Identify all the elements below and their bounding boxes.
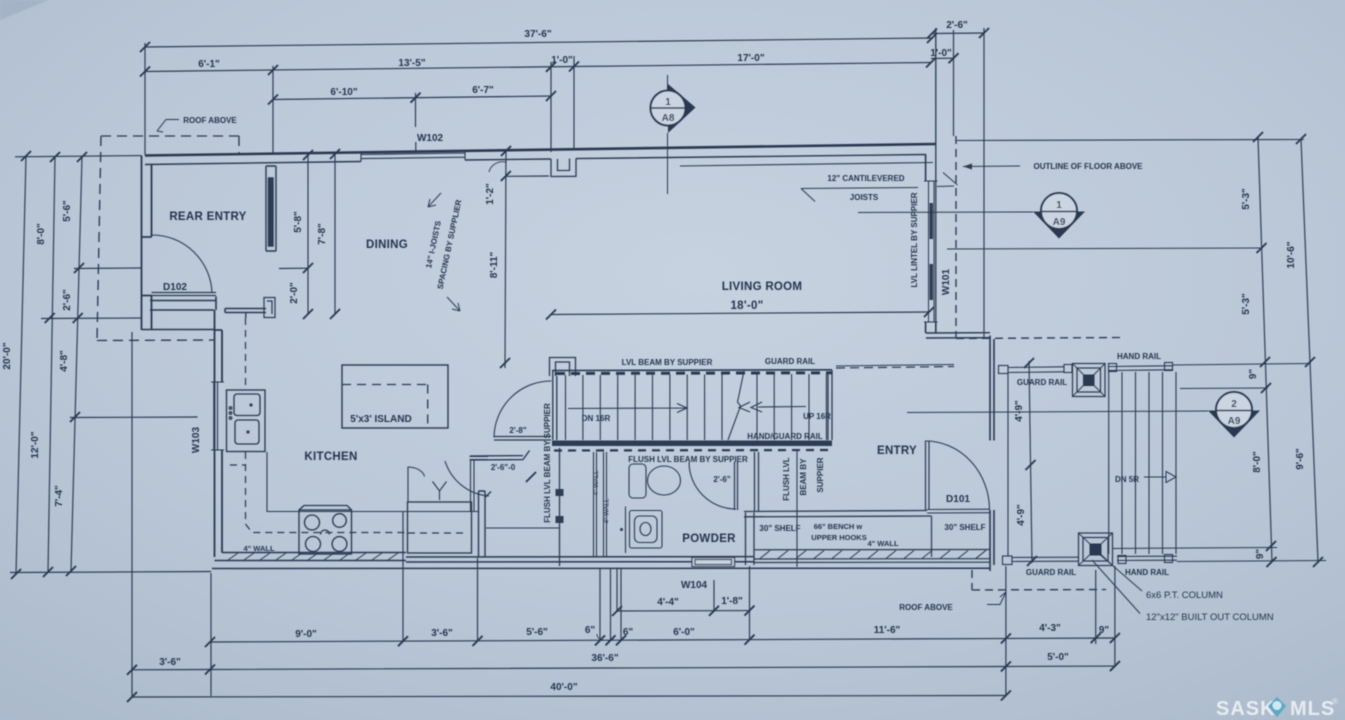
svg-text:DN 5R: DN 5R (1115, 475, 1139, 484)
svg-text:1'-0": 1'-0" (551, 55, 573, 66)
svg-text:MLS: MLS (1290, 698, 1335, 720)
svg-text:FLUSH LVL BEAM BY SUPPIER: FLUSH LVL BEAM BY SUPPIER (543, 403, 552, 523)
svg-text:SASK: SASK (1216, 698, 1276, 720)
svg-text:4'-8": 4'-8" (59, 350, 70, 372)
svg-text:FLUSH LVL: FLUSH LVL (782, 457, 791, 501)
svg-text:1'-2": 1'-2" (485, 183, 496, 205)
svg-text:9": 9" (1248, 369, 1259, 380)
svg-text:5'-0": 5'-0" (1047, 652, 1069, 663)
svg-text:20'-0": 20'-0" (2, 342, 13, 369)
svg-text:A9: A9 (1228, 416, 1241, 427)
svg-text:30" SHELF: 30" SHELF (944, 523, 985, 532)
svg-text:7'-4": 7'-4" (54, 485, 65, 507)
svg-text:W101: W101 (941, 269, 952, 296)
svg-text:A9: A9 (1053, 217, 1066, 228)
svg-text:8'-0": 8'-0" (1252, 451, 1263, 473)
svg-text:2'-8": 2'-8" (509, 426, 526, 435)
svg-text:13'-5": 13'-5" (398, 58, 425, 69)
svg-text:D102: D102 (163, 282, 187, 293)
svg-text:KITCHEN: KITCHEN (304, 451, 357, 463)
svg-text:W102: W102 (417, 133, 444, 144)
svg-text:4'-9": 4'-9" (1014, 400, 1025, 422)
svg-text:7'-8": 7'-8" (317, 223, 328, 245)
svg-text:4" WALL: 4" WALL (867, 539, 898, 548)
svg-text:5'x3' ISLAND: 5'x3' ISLAND (350, 414, 411, 425)
svg-text:OUTLINE OF FLOOR ABOVE: OUTLINE OF FLOOR ABOVE (1033, 162, 1143, 171)
svg-text:1: 1 (1056, 200, 1062, 211)
svg-text:6": 6" (623, 627, 634, 638)
svg-text:6'-0": 6'-0" (673, 627, 695, 638)
svg-text:6": 6" (585, 625, 596, 636)
svg-text:ENTRY: ENTRY (877, 445, 917, 457)
svg-text:D101: D101 (946, 494, 970, 505)
svg-text:9": 9" (1099, 625, 1110, 636)
svg-text:4'-9": 4'-9" (1016, 504, 1027, 526)
svg-text:66" BENCH w: 66" BENCH w (814, 522, 863, 531)
svg-text:2'-6": 2'-6" (62, 289, 73, 311)
svg-text:DINING: DINING (366, 239, 408, 251)
svg-text:30" SHELF: 30" SHELF (759, 524, 800, 533)
svg-text:2: 2 (1231, 399, 1237, 410)
svg-text:18'-0": 18'-0" (730, 300, 763, 312)
svg-text:LVL BEAM BY SUPPIER: LVL BEAM BY SUPPIER (622, 358, 713, 367)
svg-text:3'-6": 3'-6" (159, 657, 181, 668)
svg-text:6x6 P.T. COLUMN: 6x6 P.T. COLUMN (1146, 590, 1223, 601)
svg-text:SUPPIER: SUPPIER (816, 457, 825, 492)
svg-text:12'-0": 12'-0" (30, 431, 41, 458)
svg-text:11'-6": 11'-6" (874, 625, 901, 636)
svg-text:1'-8": 1'-8" (721, 596, 743, 607)
svg-text:FLUSH LVL BEAM BY SUPPIER: FLUSH LVL BEAM BY SUPPIER (628, 455, 748, 464)
svg-text:4" WALL: 4" WALL (604, 498, 611, 524)
svg-text:LVL LINTEL BY SUPPIER: LVL LINTEL BY SUPPIER (910, 192, 919, 287)
svg-text:37'-6": 37'-6" (524, 29, 551, 40)
svg-text:ROOF ABOVE: ROOF ABOVE (183, 116, 237, 125)
svg-text:5'-3": 5'-3" (1241, 188, 1252, 210)
svg-text:5'-3": 5'-3" (1241, 293, 1252, 315)
svg-text:1'-0": 1'-0" (930, 48, 952, 59)
svg-text:W103: W103 (191, 427, 202, 454)
svg-text:2'-6": 2'-6" (946, 20, 968, 31)
svg-text:3'-6": 3'-6" (431, 628, 453, 639)
svg-text:4'-3": 4'-3" (1039, 623, 1061, 634)
svg-text:12" CANTILEVERED: 12" CANTILEVERED (827, 174, 904, 183)
svg-text:UP 16R: UP 16R (803, 412, 831, 421)
svg-text:4" WALL: 4" WALL (243, 544, 274, 553)
svg-text:5'-6": 5'-6" (526, 627, 548, 638)
svg-text:REAR ENTRY: REAR ENTRY (169, 211, 246, 223)
svg-text:17'-0": 17'-0" (737, 53, 764, 64)
svg-text:HAND RAIL: HAND RAIL (1117, 352, 1161, 361)
svg-text:HAND RAIL: HAND RAIL (1125, 568, 1169, 577)
svg-text:DN 16R: DN 16R (582, 414, 611, 423)
svg-text:6'-7": 6'-7" (472, 85, 494, 96)
svg-text:4" WALL: 4" WALL (593, 470, 600, 496)
svg-text:W104: W104 (681, 580, 708, 591)
svg-text:2'-0": 2'-0" (289, 282, 300, 304)
svg-text:2'-6"-0: 2'-6"-0 (491, 463, 516, 472)
svg-text:40'-0": 40'-0" (550, 682, 577, 693)
svg-text:8'-0": 8'-0" (36, 223, 47, 245)
svg-text:9'-0": 9'-0" (295, 629, 317, 640)
svg-text:36'-6": 36'-6" (591, 653, 618, 664)
svg-text:9": 9" (1255, 549, 1266, 560)
svg-text:8'-11": 8'-11" (489, 251, 500, 278)
svg-text:2'-6": 2'-6" (713, 475, 730, 484)
svg-text:JOISTS: JOISTS (850, 193, 879, 202)
svg-text:5'-8": 5'-8" (293, 211, 304, 233)
svg-text:A8: A8 (662, 113, 675, 124)
svg-text:12"x12" BUILT OUT COLUMN: 12"x12" BUILT OUT COLUMN (1146, 612, 1274, 623)
svg-text:UPPER HOOKS: UPPER HOOKS (811, 533, 866, 542)
svg-text:6'-10": 6'-10" (330, 87, 357, 98)
svg-text:6'-1": 6'-1" (198, 59, 220, 70)
svg-text:GUARD RAIL: GUARD RAIL (1017, 378, 1067, 387)
svg-text:1: 1 (665, 97, 671, 108)
svg-text:4'-4": 4'-4" (657, 597, 679, 608)
svg-text:9'-6": 9'-6" (1295, 448, 1306, 470)
svg-text:HAND/GUARD RAIL: HAND/GUARD RAIL (747, 432, 823, 441)
svg-text:GUARD RAIL: GUARD RAIL (1026, 568, 1076, 577)
svg-text:®: ® (1332, 697, 1338, 706)
svg-text:LIVING ROOM: LIVING ROOM (722, 281, 803, 293)
svg-text:GUARD RAIL: GUARD RAIL (765, 357, 815, 366)
svg-text:ROOF ABOVE: ROOF ABOVE (899, 603, 953, 612)
svg-text:POWDER: POWDER (682, 533, 736, 545)
svg-text:10'-6": 10'-6" (1286, 241, 1297, 268)
svg-text:5'-6": 5'-6" (62, 200, 73, 222)
svg-text:BEAM BY: BEAM BY (799, 458, 808, 496)
